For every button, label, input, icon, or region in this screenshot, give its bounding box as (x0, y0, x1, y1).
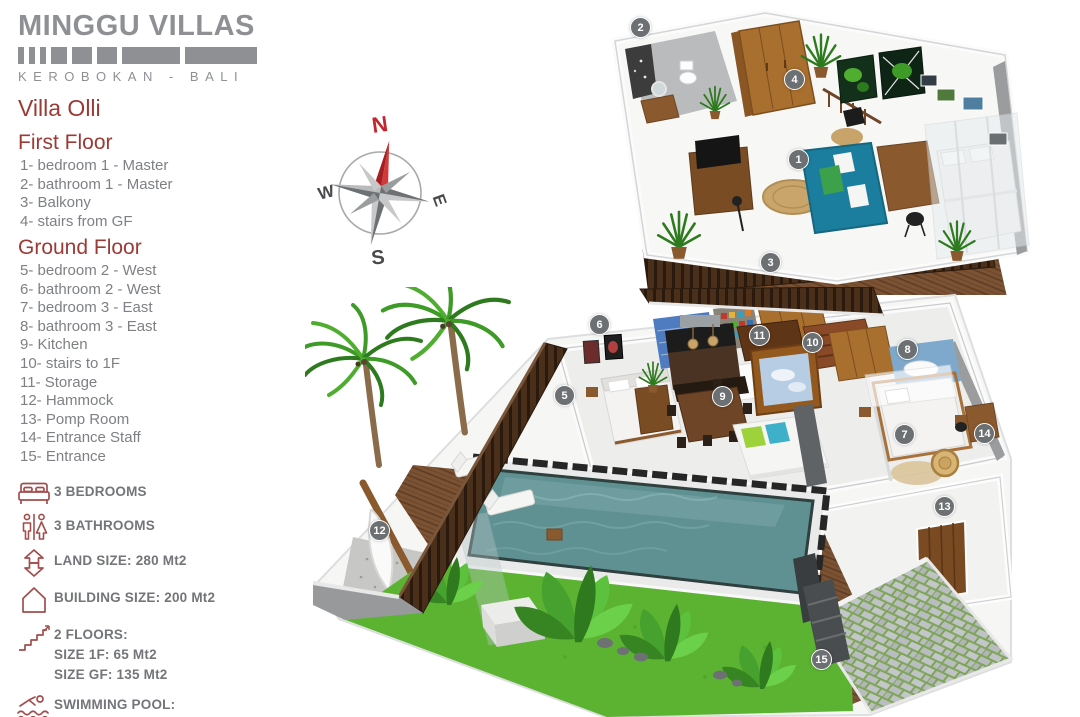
spec-text: 3 BEDROOMS (54, 482, 147, 502)
spec-text: SIZE 1F: 65 Mt2 (54, 645, 167, 665)
legend-item: 1- bedroom 1 - Master (20, 157, 173, 176)
palm-tree (305, 305, 421, 465)
legend-item: 14- Entrance Staff (20, 429, 161, 448)
room-marker-14: 14 (974, 423, 995, 444)
room-marker-7: 7 (894, 424, 915, 445)
legend-item: 4- stairs from GF (20, 213, 173, 232)
legend-item: 11- Storage (20, 374, 161, 393)
legend-item: 2- bathroom 1 - Master (20, 176, 173, 195)
legend-item: 15- Entrance (20, 448, 161, 467)
room-marker-12: 12 (369, 520, 390, 541)
swimmer-icon (14, 692, 54, 717)
spec-land-size: LAND SIZE: 280 Mt2 (14, 548, 274, 578)
legend-item: 12- Hammock (20, 392, 161, 411)
room-marker-13: 13 (934, 496, 955, 517)
compass-rose: N W E S (312, 108, 452, 268)
compass-north-label: N (370, 111, 389, 138)
room-marker-11: 11 (749, 325, 770, 346)
room-marker-10: 10 (802, 332, 823, 353)
spec-text: 2 FLOORS: (54, 625, 167, 645)
deck-stool (547, 529, 562, 540)
villa-floorplan-brochure: MINGGU VILLAS KEROBOKAN - BALI Villa Oll… (0, 0, 1080, 717)
spec-pool: SWIMMING POOL: SIZE: 8,2 x 3,4 Mt DEEP: … (14, 692, 274, 717)
room-marker-4: 4 (784, 69, 805, 90)
brand-location: KEROBOKAN - BALI (18, 69, 286, 84)
glass-partition (925, 113, 1029, 259)
room-marker-3: 3 (760, 252, 781, 273)
legend-item: 5- bedroom 2 - West (20, 262, 161, 281)
room-marker-2: 2 (630, 17, 651, 38)
first-floor-title: First Floor (18, 131, 113, 155)
ground-floor-plan-rendering: 5 6 7 8 9 10 11 12 13 14 15 (305, 287, 1015, 717)
spec-building-size: BUILDING SIZE: 200 Mt2 (14, 585, 274, 615)
brand-barcode-decoration (18, 47, 286, 64)
legend-item: 6- bathroom 2 - West (20, 281, 161, 300)
room-marker-8: 8 (897, 339, 918, 360)
property-specs: 3 BEDROOMS 3 BATHROOMS LAND SIZE: 280 Mt… (14, 479, 274, 717)
compass-south-label: S (370, 246, 386, 268)
building-size-icon (14, 585, 54, 615)
spec-text: SIZE GF: 135 Mt2 (54, 665, 167, 685)
legend-item: 13- Pomp Room (20, 411, 161, 430)
legend-item: 8- bathroom 3 - East (20, 318, 161, 337)
villa-name: Villa Olli (18, 95, 101, 122)
spec-bedrooms: 3 BEDROOMS (14, 479, 274, 506)
wardrobe (731, 21, 815, 117)
bed-icon (14, 479, 54, 506)
brand-name: MINGGU VILLAS (18, 12, 286, 41)
ground-floor-legend: 5- bedroom 2 - West 6- bathroom 2 - West… (20, 262, 161, 467)
room-marker-6: 6 (589, 314, 610, 335)
wall-mirror (751, 343, 821, 415)
legend-item: 3- Balkony (20, 194, 173, 213)
stairs-icon (14, 622, 54, 652)
spec-bathrooms: 3 BATHROOMS (14, 513, 274, 541)
legend-item: 10- stairs to 1F (20, 355, 161, 374)
spec-floors: 2 FLOORS: SIZE 1F: 65 Mt2 SIZE GF: 135 M… (14, 622, 274, 685)
room-marker-5: 5 (554, 385, 575, 406)
first-floor-legend: 1- bedroom 1 - Master 2- bathroom 1 - Ma… (20, 157, 173, 231)
legend-item: 7- bedroom 3 - East (20, 299, 161, 318)
spec-text: 3 BATHROOMS (54, 516, 155, 536)
land-size-icon (14, 548, 54, 578)
spec-text: LAND SIZE: 280 Mt2 (54, 551, 187, 571)
spec-text: BUILDING SIZE: 200 Mt2 (54, 588, 215, 608)
legend-item: 9- Kitchen (20, 336, 161, 355)
bathrooms-icon (14, 513, 54, 541)
room-marker-9: 9 (712, 386, 733, 407)
room-marker-1: 1 (788, 149, 809, 170)
room-marker-15: 15 (811, 649, 832, 670)
brand-logo: MINGGU VILLAS KEROBOKAN - BALI (18, 12, 286, 84)
spec-text: SWIMMING POOL: (54, 695, 180, 715)
ground-floor-title: Ground Floor (18, 236, 142, 260)
first-floor-plan-rendering: 1 2 3 4 (585, 5, 1035, 295)
compass-east-label: E (429, 192, 451, 209)
